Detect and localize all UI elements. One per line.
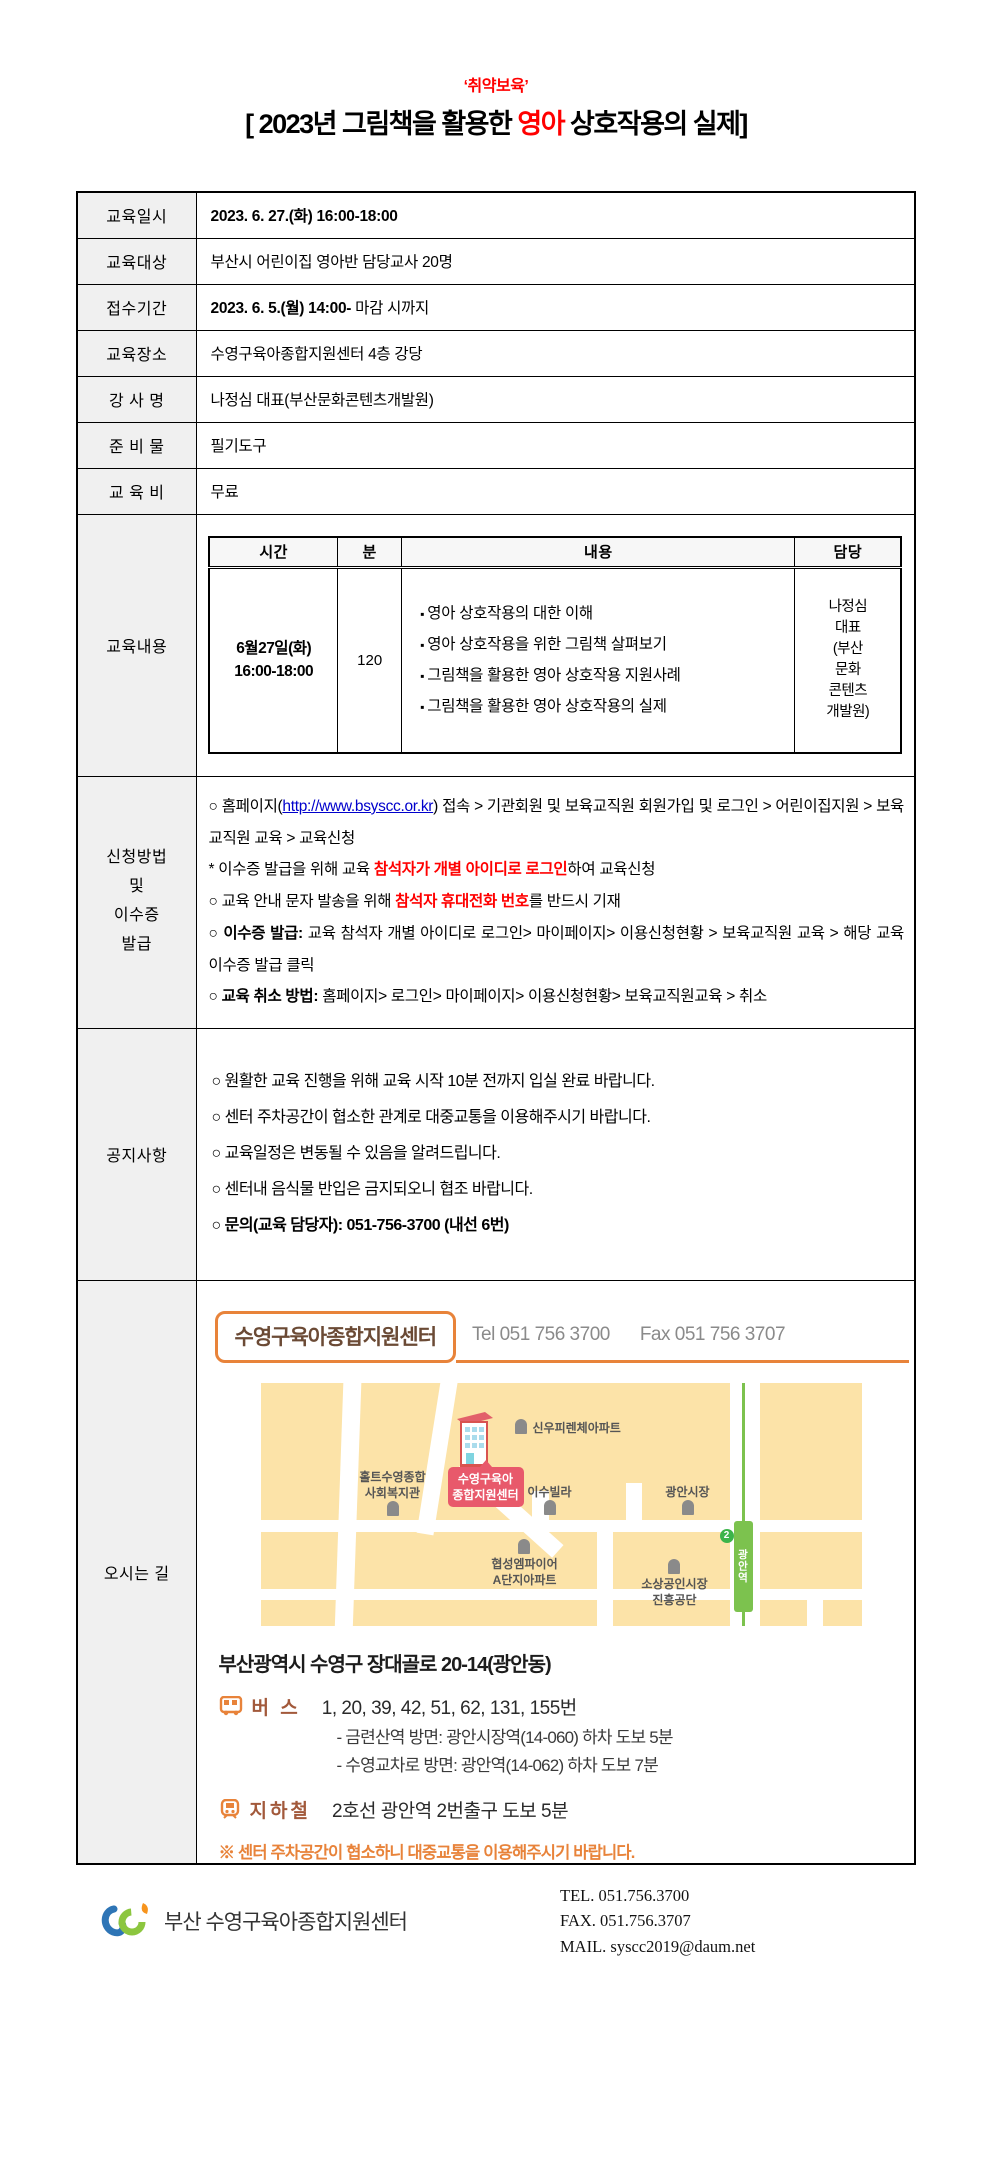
address: 부산광역시 수영구 장대골로 20-14(광안동) [219,1648,903,1677]
info-row-value: 수영구육아종합지원센터 4층 강당 [196,330,915,376]
notice-line: ○ 교육일정은 변동될 수 있음을 알려드립니다. [212,1136,915,1172]
info-table: 교육일시 2023. 6. 27.(화) 16:00-18:00 교육대상 부산… [76,191,916,1865]
schedule-time-hours: 16:00-18:00 [234,663,313,680]
bus-icon [219,1696,243,1716]
value-rest: 필기도구 [211,438,267,455]
footer-org-name: 부산 수영구육아종합지원센터 [164,1906,407,1936]
station-name: 광안역 [736,1549,751,1584]
apply-row-label: 신청방법 및 이수증 발급 [77,776,196,1028]
subway-text: 2호선 광안역 2번출구 도보 5분 [332,1796,568,1823]
bus-detail-line: - 금련산역 방면: 광안시장역(14-060) 하차 도보 5분 [337,1724,903,1752]
org-name-box: 수영구육아종합지원센터 [215,1311,457,1363]
manager-line: (부산 [795,639,900,660]
schedule-bullet: 영아 상호작용을 위한 그림책 살펴보기 [420,629,794,660]
info-row-value: 부산시 어린이집 영아반 담당교사 20명 [196,238,915,284]
map-road [597,1531,613,1626]
building-icon [518,1539,530,1554]
value-rest: 부산시 어린이집 영아반 담당교사 20명 [211,254,453,271]
bus-details: - 금련산역 방면: 광안시장역(14-060) 하차 도보 5분 - 수영교차… [337,1724,903,1780]
apply-line: * 이수증 발급을 위해 교육 참석자가 개별 아이디로 로그인하여 교육신청 [209,854,905,886]
table-row: 교육대상 부산시 어린이집 영아반 담당교사 20명 [77,238,915,284]
org-tel: Tel 051 756 3700 [472,1324,610,1346]
apply-text: 하여 교육신청 [567,861,655,878]
value-rest: 나정심 대표(부산문화콘텐츠개발원) [211,392,434,409]
map-label-line: 사회복지관 [365,1486,420,1500]
value-bold: 2023. 6. 27.(화) 16:00-18:00 [211,208,398,225]
schedule-table: 시간 분 내용 담당 6월27일(화)16:00-18:00 120 영아 상호… [208,536,902,754]
table-row: 교 육 비 무료 [77,468,915,514]
map-label-sinwoo: 신우피렌체아파트 [533,1420,621,1436]
table-row: 강 사 명 나정심 대표(부산문화콘텐츠개발원) [77,376,915,422]
notice-line: ○ 원활한 교육 진행을 위해 교육 시작 10분 전까지 입실 완료 바랍니다… [212,1064,915,1100]
map-label-line: 진흥공단 [652,1593,696,1607]
parking-note: ※ 센터 주차공간이 협소하니 대중교통을 이용해주시기 바랍니다. [219,1839,903,1863]
map-label-hyupsung: 협성엠파이어 A단지아파트 [485,1556,565,1588]
apply-label-line: 및 [129,878,144,895]
apply-line: ○ 이수증 발급: 교육 참석자 개별 아이디로 로그인> 마이페이지> 이용신… [209,918,905,982]
homepage-link[interactable]: http://www.bsyscc.or.kr [282,798,433,815]
org-header: 수영구육아종합지원센터 Tel 051 756 3700 Fax 051 756… [215,1311,909,1363]
value-rest: 무료 [211,484,239,501]
apply-text: 를 반드시 기재 [529,893,621,910]
badge-line: 수영구육아 [458,1472,513,1486]
apply-line: ○ 홈페이지(http://www.bsyscc.or.kr) 접속 > 기관회… [209,791,905,855]
table-row: 교육장소 수영구육아종합지원센터 4층 강당 [77,330,915,376]
map-label-line: 홀트수영종합 [359,1470,425,1484]
apply-line: ○ 교육 취소 방법: 홈페이지> 로그인> 마이페이지> 이용신청현황> 보육… [209,981,905,1013]
apply-label-line: 신청방법 [106,849,167,866]
info-row-value: 무료 [196,468,915,514]
info-row-value: 2023. 6. 5.(월) 14:00- 마감 시까지 [196,284,915,330]
info-row-value: 2023. 6. 27.(화) 16:00-18:00 [196,192,915,238]
schedule-bullet: 그림책을 활용한 영아 상호작용의 실제 [420,691,794,722]
schedule-manager: 나정심 대표 (부산 문화 콘텐츠 개발원) [795,567,901,753]
schedule-col-content: 내용 [402,537,795,567]
page-title: [ 2023년 그림책을 활용한 영아 상호작용의 실제] [76,102,916,141]
map-label-isu: 이수빌라 [525,1484,575,1500]
title-prefix: [ 2023년 그림책을 활용한 [245,109,517,139]
bus-detail-line: - 수영교차로 방면: 광안역(14-062) 하차 도보 7분 [337,1752,903,1780]
apply-text: ○ 교육 안내 문자 발송을 위해 [209,893,396,910]
subway-line2-badge: 2 [720,1529,734,1543]
schedule-time-date: 6월27일(화) [236,640,311,657]
schedule-bullet: 영아 상호작용의 대한 이해 [420,598,794,629]
apply-text: ○ [209,925,224,942]
apply-line: ○ 교육 안내 문자 발송을 위해 참석자 휴대전화 번호를 반드시 기재 [209,886,905,918]
schedule-row-label: 교육내용 [77,514,196,776]
tagline: ‘취약보육’ [76,72,916,96]
apply-text: ○ 홈페이지( [209,798,283,815]
schedule-minutes: 120 [338,567,402,753]
table-row: 준 비 물 필기도구 [77,422,915,468]
map-label-line: 소상공인시장 [641,1577,707,1591]
building-icon [387,1501,399,1516]
apply-bold: 이수증 발급: [223,925,303,942]
footer-org: 부산 수영구육아종합지원센터 [98,1899,498,1943]
value-bold: 2023. 6. 5.(월) 14:00- [211,300,352,317]
map-label-market: 광안시장 [663,1484,713,1500]
value-rest: 수영구육아종합지원센터 4층 강당 [211,346,423,363]
schedule-cell: 시간 분 내용 담당 6월27일(화)16:00-18:00 120 영아 상호… [196,514,915,776]
apply-bold: 교육 취소 방법: [222,988,319,1005]
map-road [807,1600,823,1626]
badge-line: 종합지원센터 [452,1488,518,1502]
apply-label-line: 발급 [122,936,152,953]
info-row-label: 준 비 물 [77,422,196,468]
info-row-value: 나정심 대표(부산문화콘텐츠개발원) [196,376,915,422]
schedule-col-manager: 담당 [795,537,901,567]
schedule-time: 6월27일(화)16:00-18:00 [209,567,337,753]
bus-label: 버 스 [252,1693,301,1720]
map-label-line: A단지아파트 [493,1573,557,1587]
title-highlight: 영아 [517,109,564,139]
schedule-header-row: 시간 분 내용 담당 [209,537,901,567]
document: ‘취약보육’ [ 2023년 그림책을 활용한 영아 상호작용의 실제] 교육일… [76,72,916,1959]
schedule-col-minutes: 분 [338,537,402,567]
notice-line: ○ 센터 주차공간이 협소한 관계로 대중교통을 이용해주시기 바랍니다. [212,1100,915,1136]
manager-line: 문화 [795,660,900,681]
value-rest: 마감 시까지 [351,300,429,317]
manager-line: 대표 [795,618,900,639]
map-label-holt: 홀트수영종합 사회복지관 [353,1469,433,1501]
notice-row: 공지사항 ○ 원활한 교육 진행을 위해 교육 시작 10분 전까지 입실 완료… [77,1028,915,1280]
apply-row: 신청방법 및 이수증 발급 ○ 홈페이지(http://www.bsyscc.o… [77,776,915,1028]
center-badge: 수영구육아 종합지원센터 [448,1467,524,1507]
building-icon [515,1419,527,1434]
table-row: 교육일시 2023. 6. 27.(화) 16:00-18:00 [77,192,915,238]
table-row: 접수기간 2023. 6. 5.(월) 14:00- 마감 시까지 [77,284,915,330]
manager-line: 콘텐츠 [795,681,900,702]
directions-row: 오시는 길 수영구육아종합지원센터 Tel 051 756 3700 Fax 0… [77,1280,915,1864]
info-row-label: 교 육 비 [77,468,196,514]
schedule-row: 교육내용 시간 분 내용 담당 6월27일(화)16:00-18:00 120 … [77,514,915,776]
manager-line: 나정심 [795,597,900,618]
subway-station: 광안역 [734,1521,753,1612]
building-icon [668,1559,680,1574]
map-label-line: 협성엠파이어 [491,1557,557,1571]
info-row-label: 교육대상 [77,238,196,284]
footer-contact: TEL. 051.756.3700 FAX. 051.756.3707 MAIL… [560,1883,755,1960]
footer-fax: FAX. 051.756.3707 [560,1908,755,1934]
apply-text: * 이수증 발급을 위해 교육 [209,861,374,878]
map-label-sosang: 소상공인시장 진흥공단 [636,1576,714,1608]
bus-row: 버 스 1, 20, 39, 42, 51, 62, 131, 155번 [219,1693,903,1720]
apply-emphasis: 참석자가 개별 아이디로 로그인 [374,861,568,878]
directions-row-label: 오시는 길 [77,1280,196,1864]
info-row-value: 필기도구 [196,422,915,468]
subway-label: 지하철 [250,1796,311,1823]
apply-emphasis: 참석자 휴대전화 번호 [395,893,529,910]
info-row-label: 교육일시 [77,192,196,238]
apply-label-line: 이수증 [114,907,160,924]
bus-routes: 1, 20, 39, 42, 51, 62, 131, 155번 [322,1693,577,1720]
org-logo-icon [98,1899,154,1943]
apply-text: ○ [209,988,222,1005]
schedule-content: 영아 상호작용의 대한 이해 영아 상호작용을 위한 그림책 살펴보기 그림책을… [402,567,795,753]
notice-line: ○ 센터내 음식물 반입은 금지되오니 협조 바랍니다. [212,1172,915,1208]
apply-cell: ○ 홈페이지(http://www.bsyscc.or.kr) 접속 > 기관회… [196,776,915,1028]
apply-text: 교육 참석자 개별 아이디로 로그인> 마이페이지> 이용신청현황 > 보육교직… [209,925,905,974]
train-icon [219,1799,241,1819]
directions-cell: 수영구육아종합지원센터 Tel 051 756 3700 Fax 051 756… [196,1280,915,1864]
notice-cell: ○ 원활한 교육 진행을 위해 교육 시작 10분 전까지 입실 완료 바랍니다… [196,1028,915,1280]
apply-text: 홈페이지> 로그인> 마이페이지> 이용신청현황> 보육교직원교육 > 취소 [318,988,767,1005]
org-contact-line: Tel 051 756 3700 Fax 051 756 3707 [456,1311,908,1363]
notice-row-label: 공지사항 [77,1028,196,1280]
info-row-label: 강 사 명 [77,376,196,422]
subway-row: 지하철 2호선 광안역 2번출구 도보 5분 [219,1796,903,1823]
schedule-bullet: 그림책을 활용한 영아 상호작용 지원사례 [420,660,794,691]
notice-line-contact: ○ 문의(교육 담당자): 051-756-3700 (내선 6번) [212,1208,915,1244]
org-fax: Fax 051 756 3707 [640,1324,785,1346]
location-map: 신우피렌체아파트 홀트수영종합 사회복지관 수영구육아 종합지원센터 이수빌라 … [261,1383,862,1626]
schedule-col-time: 시간 [209,537,337,567]
info-row-label: 접수기간 [77,284,196,330]
map-road [626,1483,642,1523]
footer-tel: TEL. 051.756.3700 [560,1883,755,1909]
footer: 부산 수영구육아종합지원센터 TEL. 051.756.3700 FAX. 05… [76,1883,916,1960]
title-suffix: 상호작용의 실제] [564,109,747,139]
building-icon [544,1500,556,1515]
info-row-label: 교육장소 [77,330,196,376]
footer-mail: MAIL. syscc2019@daum.net [560,1934,755,1960]
building-icon [682,1500,694,1515]
manager-line: 개발원) [795,702,900,723]
schedule-body-row: 6월27일(화)16:00-18:00 120 영아 상호작용의 대한 이해 영… [209,567,901,753]
